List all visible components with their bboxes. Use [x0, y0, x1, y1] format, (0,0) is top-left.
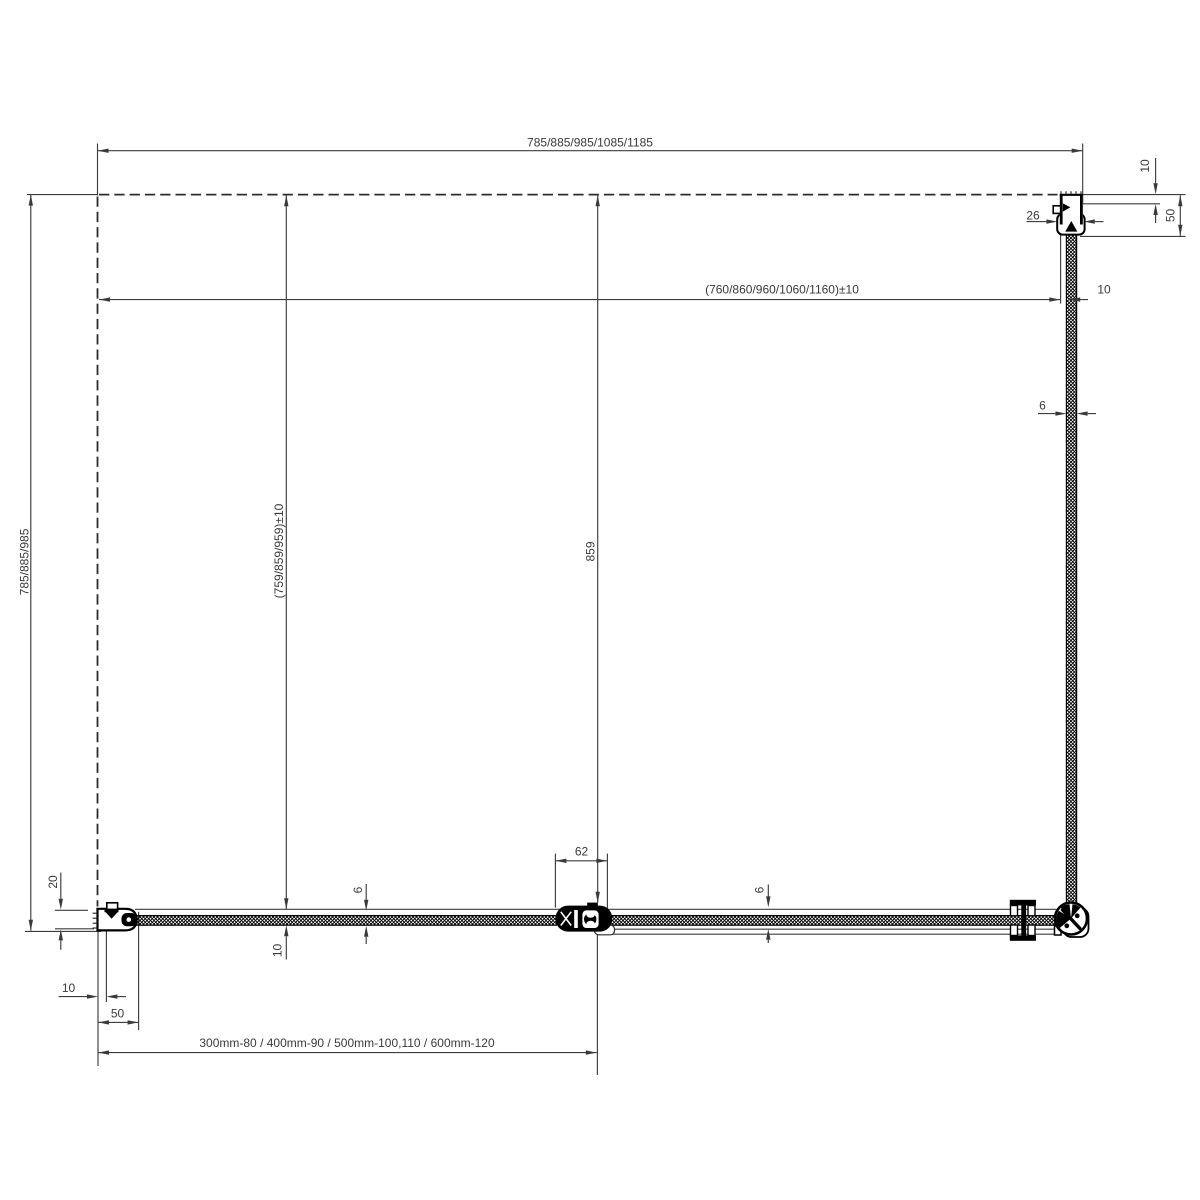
svg-text:6: 6	[753, 886, 767, 893]
svg-text:6: 6	[1039, 399, 1046, 413]
svg-text:(759/859/959)±10: (759/859/959)±10	[272, 503, 286, 598]
svg-text:859: 859	[584, 541, 598, 561]
svg-text:26: 26	[1026, 209, 1040, 223]
svg-text:10: 10	[271, 944, 285, 958]
svg-text:10: 10	[62, 981, 76, 995]
svg-text:(760/860/960/1060/1160)±10: (760/860/960/1060/1160)±10	[705, 283, 859, 297]
svg-text:20: 20	[46, 875, 60, 889]
svg-text:10: 10	[1138, 159, 1152, 173]
svg-text:6: 6	[351, 886, 365, 893]
svg-text:10: 10	[1097, 283, 1111, 297]
svg-text:785/885/985/1085/1185: 785/885/985/1085/1185	[527, 136, 653, 150]
svg-text:785/885/985: 785/885/985	[18, 528, 32, 595]
svg-text:300mm-80 / 400mm-90 / 500mm-10: 300mm-80 / 400mm-90 / 500mm-100,110 / 60…	[199, 1036, 495, 1050]
svg-text:62: 62	[575, 845, 589, 859]
svg-text:50: 50	[111, 1007, 125, 1021]
svg-text:50: 50	[1164, 209, 1178, 223]
